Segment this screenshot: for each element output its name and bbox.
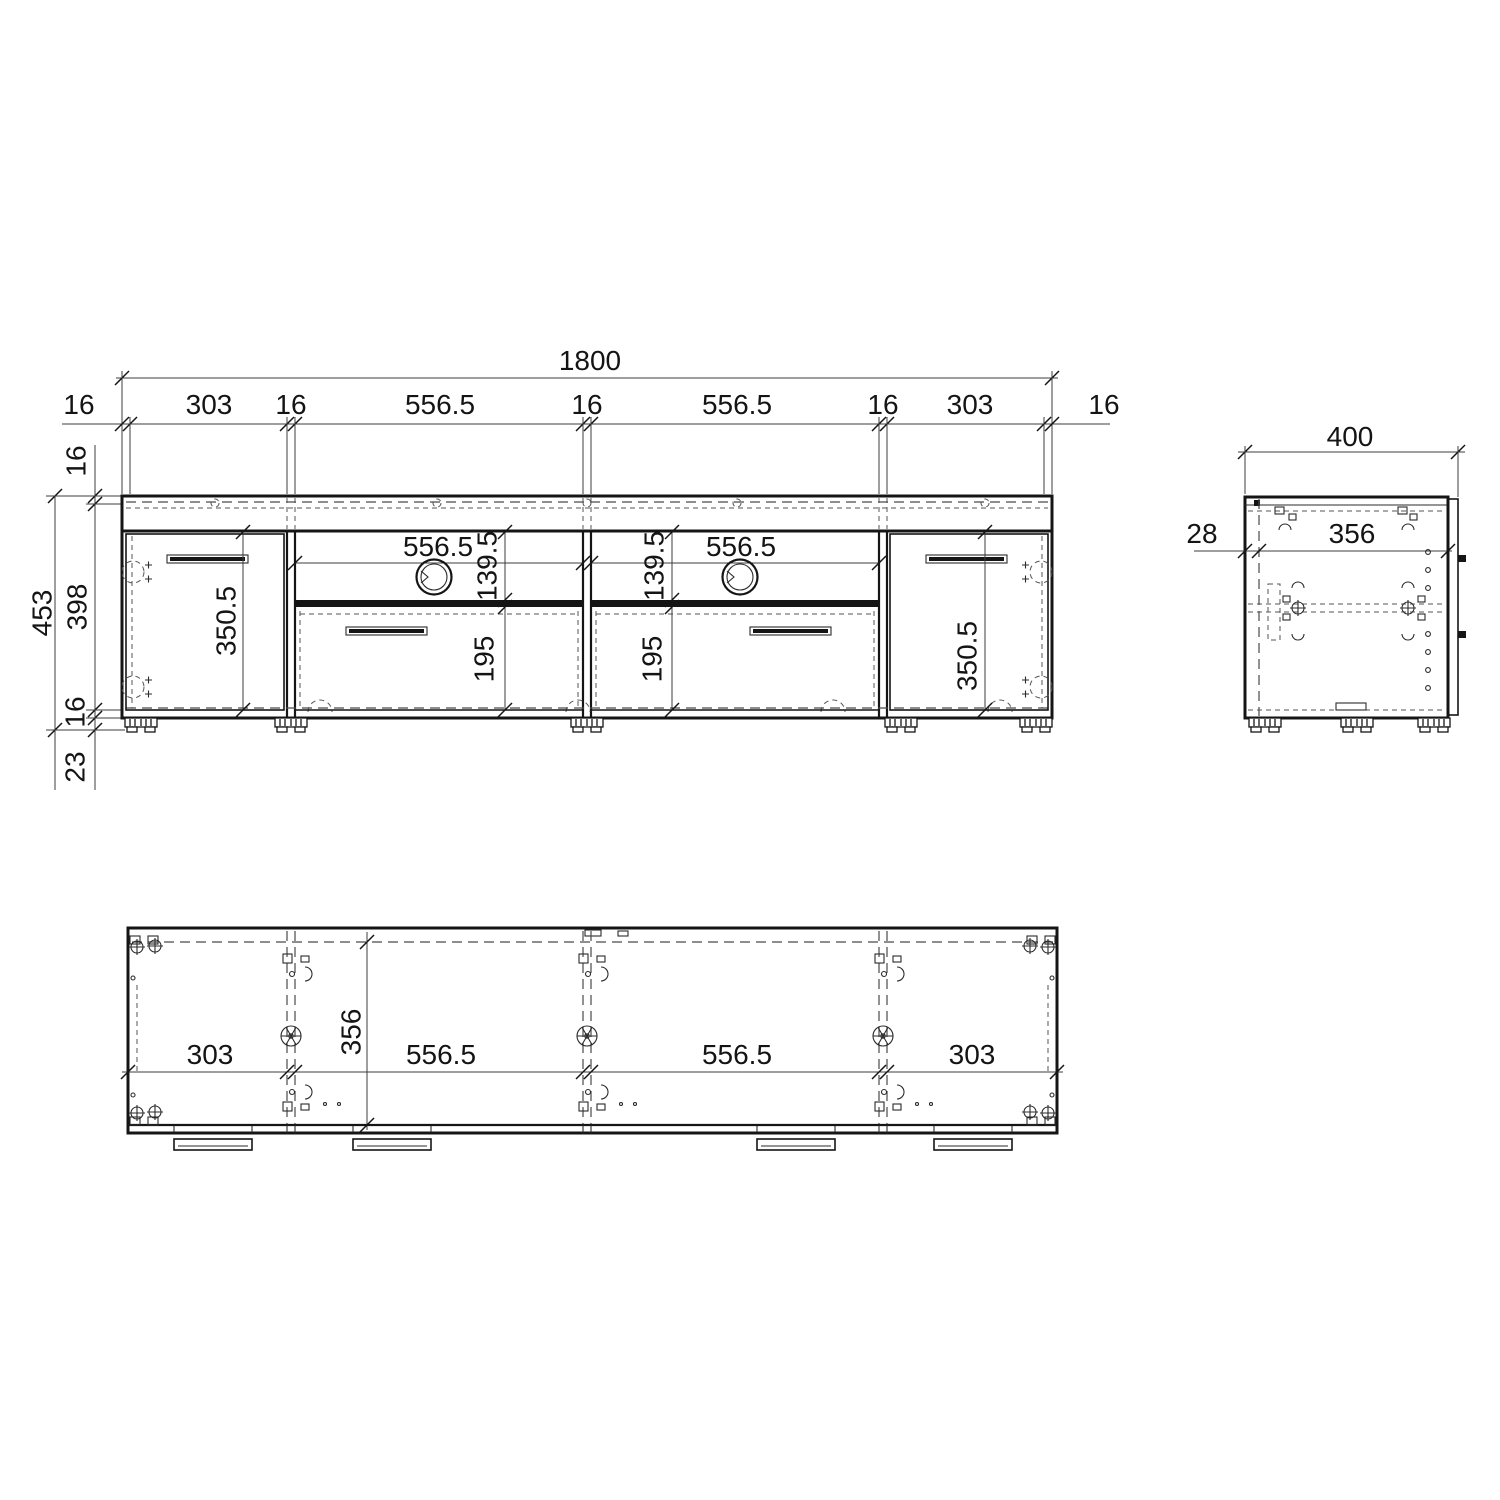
plan-corner-fittings <box>129 936 1056 1125</box>
dim-right-door-height: 350.5 <box>952 621 983 691</box>
plan-handle-left-door <box>174 1139 252 1150</box>
dim-plan-556-a: 556.5 <box>406 1039 476 1070</box>
dim-left-door-height: 350.5 <box>211 586 242 656</box>
plan-handles <box>174 1139 1012 1150</box>
side-interior-dimensions: 28 356 <box>1186 518 1455 558</box>
dim-left-drawer-height: 195 <box>469 636 500 683</box>
dim-chain-16-d: 16 <box>867 389 898 420</box>
front-left-niche: 556.5 139.5 <box>288 525 590 607</box>
dim-right-niche-height: 139.5 <box>639 531 670 601</box>
dim-chain-303-a: 303 <box>186 389 233 420</box>
dim-plan-303-b: 303 <box>949 1039 996 1070</box>
dim-chain-303-b: 303 <box>947 389 994 420</box>
dim-front-height-total: 453 <box>27 590 58 637</box>
front-height-dimensions: 453 16 398 16 23 <box>27 445 126 790</box>
dim-plan-303-a: 303 <box>187 1039 234 1070</box>
plan-depth-dimension: 356 <box>336 932 375 1132</box>
front-feet <box>125 718 1052 732</box>
dim-side-back-offset: 28 <box>1186 518 1217 549</box>
cable-grommet-right <box>723 560 758 595</box>
dim-chain-16-e: 16 <box>1088 389 1119 420</box>
plan-view: 303 556.5 556.5 303 356 <box>121 928 1064 1150</box>
front-width-chain-dimension: 16 303 16 556.5 16 556.5 16 303 16 <box>62 389 1120 494</box>
dim-front-interior-height: 398 <box>62 584 93 631</box>
front-carcass <box>122 496 1052 718</box>
cable-grommet-left <box>417 560 452 595</box>
dim-side-interior-depth: 356 <box>1329 518 1376 549</box>
furniture-dimension-drawing: 1800 16 303 16 556.5 16 556.5 16 <box>0 0 1500 1500</box>
left-shelf <box>295 600 583 607</box>
dim-chain-556-b: 556.5 <box>702 389 772 420</box>
plan-partition-fittings <box>283 954 933 1111</box>
front-left-drawer: 195 <box>296 600 582 717</box>
dim-plan-interior-depth: 356 <box>336 1009 367 1056</box>
front-view: 1800 16 303 16 556.5 16 556.5 16 <box>27 345 1120 790</box>
dim-front-top-panel: 16 <box>61 445 92 476</box>
side-shelf-pin-holes <box>1426 550 1431 691</box>
dim-chain-16-c: 16 <box>571 389 602 420</box>
technical-drawing-page: 1800 16 303 16 556.5 16 556.5 16 <box>0 0 1500 1500</box>
side-hinge-peg-top <box>1458 555 1466 562</box>
dim-left-niche-width: 556.5 <box>403 531 473 562</box>
plan-partitions <box>281 931 893 1124</box>
side-shelf-fittings <box>1248 582 1445 640</box>
dim-chain-556-a: 556.5 <box>405 389 475 420</box>
side-depth-dimension: 400 <box>1238 421 1465 497</box>
dim-front-feet-height: 23 <box>60 751 91 782</box>
dim-side-depth: 400 <box>1327 421 1374 452</box>
dim-left-niche-height: 139.5 <box>472 531 503 601</box>
side-door-edge <box>1448 499 1466 715</box>
dim-chain-16-b: 16 <box>275 389 306 420</box>
side-hinge-peg-bottom <box>1458 631 1466 638</box>
plan-handle-right-drawer <box>757 1139 835 1150</box>
front-right-niche: 556.5 139.5 <box>584 525 886 607</box>
dim-plan-556-b: 556.5 <box>702 1039 772 1070</box>
dim-chain-16-a: 16 <box>63 389 94 420</box>
dim-front-bottom-panel: 16 <box>60 696 91 727</box>
dim-right-drawer-height: 195 <box>637 636 668 683</box>
front-right-door: 350.5 <box>890 525 1052 717</box>
side-view: 400 28 356 <box>1186 421 1466 732</box>
front-left-door: 350.5 <box>122 525 284 717</box>
right-shelf <box>591 600 879 607</box>
plan-handle-right-door <box>934 1139 1012 1150</box>
side-feet <box>1249 718 1450 732</box>
plan-handle-left-drawer <box>353 1139 431 1150</box>
dim-right-niche-width: 556.5 <box>706 531 776 562</box>
front-right-drawer: 195 <box>592 600 878 717</box>
dim-front-total-width: 1800 <box>559 345 621 376</box>
